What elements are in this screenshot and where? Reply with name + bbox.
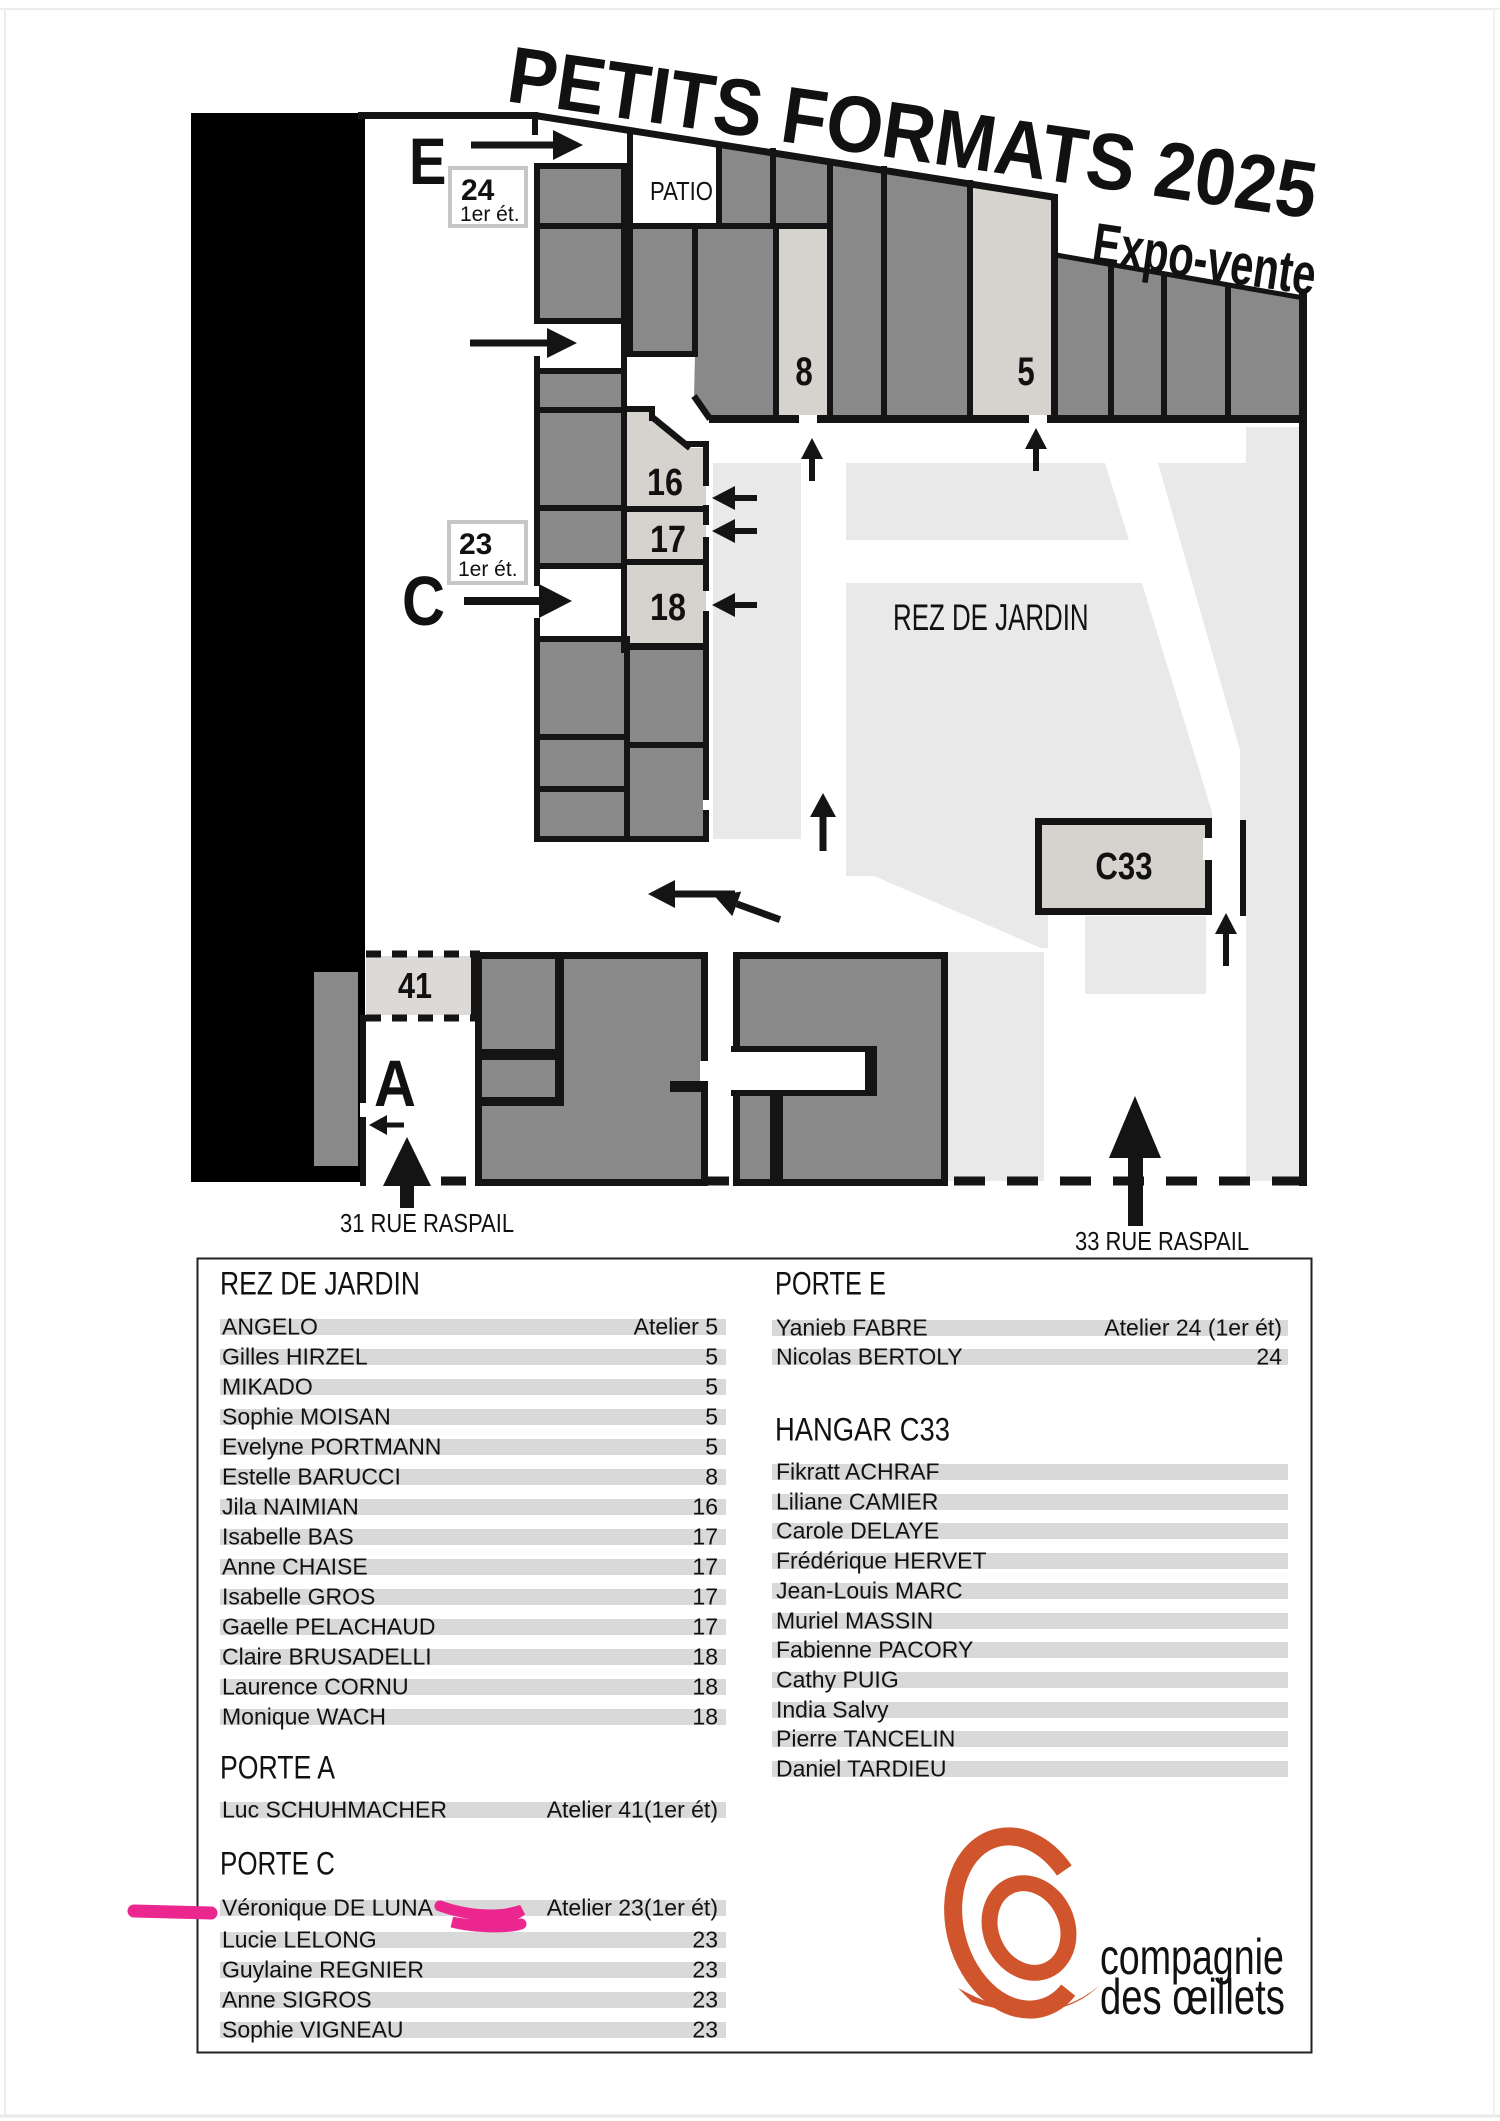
svg-text:REZ DE JARDIN: REZ DE JARDIN	[893, 596, 1089, 638]
svg-text:PATIO: PATIO	[650, 177, 713, 206]
svg-text:Carole DELAYE: Carole DELAYE	[776, 1518, 939, 1544]
svg-text:Anne CHAISE: Anne CHAISE	[222, 1554, 368, 1580]
svg-text:Yanieb FABRE: Yanieb FABRE	[776, 1315, 928, 1341]
svg-text:5: 5	[705, 1404, 718, 1430]
svg-text:Fikratt ACHRAF: Fikratt ACHRAF	[776, 1459, 940, 1485]
svg-text:India Salvy: India Salvy	[776, 1697, 889, 1723]
svg-text:des œillets: des œillets	[1100, 1970, 1285, 2025]
svg-text:MIKADO: MIKADO	[222, 1374, 313, 1400]
svg-text:Sophie VIGNEAU: Sophie VIGNEAU	[222, 2017, 404, 2043]
svg-text:A: A	[374, 1048, 416, 1121]
svg-text:HANGAR C33: HANGAR C33	[775, 1413, 950, 1448]
svg-text:PORTE A: PORTE A	[220, 1750, 335, 1786]
svg-text:Estelle BARUCCI: Estelle BARUCCI	[222, 1464, 401, 1490]
svg-text:Luc SCHUHMACHER: Luc SCHUHMACHER	[222, 1797, 447, 1823]
svg-text:Atelier 5: Atelier 5	[634, 1314, 718, 1340]
svg-text:ANGELO: ANGELO	[222, 1314, 318, 1340]
svg-text:5: 5	[705, 1344, 718, 1370]
svg-text:PORTE E: PORTE E	[775, 1267, 886, 1302]
svg-text:Jean-Louis MARC: Jean-Louis MARC	[776, 1578, 963, 1604]
svg-text:Sophie MOISAN: Sophie MOISAN	[222, 1404, 391, 1430]
svg-text:Jila NAIMIAN: Jila NAIMIAN	[222, 1494, 359, 1520]
svg-text:Véronique DE LUNA: Véronique DE LUNA	[222, 1895, 434, 1921]
svg-text:REZ DE JARDIN: REZ DE JARDIN	[220, 1266, 420, 1302]
svg-text:17: 17	[692, 1614, 718, 1640]
svg-text:17: 17	[692, 1554, 718, 1580]
svg-text:17: 17	[650, 519, 686, 561]
svg-text:E: E	[409, 125, 446, 198]
svg-text:Anne SIGROS: Anne SIGROS	[222, 1987, 372, 2013]
svg-text:23: 23	[692, 1987, 718, 2013]
svg-text:Guylaine REGNIER: Guylaine REGNIER	[222, 1957, 424, 1983]
svg-text:5: 5	[705, 1374, 718, 1400]
svg-text:Isabelle GROS: Isabelle GROS	[222, 1584, 375, 1610]
svg-text:Muriel MASSIN: Muriel MASSIN	[776, 1608, 933, 1634]
svg-text:Nicolas BERTOLY: Nicolas BERTOLY	[776, 1344, 963, 1370]
svg-text:Liliane CAMIER: Liliane CAMIER	[776, 1489, 938, 1515]
svg-text:16: 16	[692, 1494, 718, 1520]
svg-text:Laurence CORNU: Laurence CORNU	[222, 1674, 409, 1700]
svg-text:1er ét.: 1er ét.	[458, 558, 518, 581]
svg-text:Gilles HIRZEL: Gilles HIRZEL	[222, 1344, 368, 1370]
svg-text:23: 23	[459, 528, 492, 561]
svg-text:Atelier 24 (1er ét): Atelier 24 (1er ét)	[1104, 1315, 1282, 1341]
svg-text:18: 18	[650, 587, 686, 629]
svg-text:23: 23	[692, 1957, 718, 1983]
svg-text:18: 18	[692, 1674, 718, 1700]
svg-text:Lucie LELONG: Lucie LELONG	[222, 1927, 377, 1953]
svg-text:Atelier 41(1er ét): Atelier 41(1er ét)	[547, 1797, 718, 1823]
svg-text:18: 18	[692, 1704, 718, 1730]
svg-text:Cathy PUIG: Cathy PUIG	[776, 1667, 899, 1693]
svg-text:Claire BRUSADELLI: Claire BRUSADELLI	[222, 1644, 432, 1670]
svg-text:5: 5	[1017, 349, 1034, 394]
svg-text:18: 18	[692, 1644, 718, 1670]
svg-text:Evelyne PORTMANN: Evelyne PORTMANN	[222, 1434, 441, 1460]
svg-text:5: 5	[705, 1434, 718, 1460]
svg-text:17: 17	[692, 1584, 718, 1610]
svg-text:16: 16	[647, 462, 683, 504]
svg-text:Daniel TARDIEU: Daniel TARDIEU	[776, 1756, 946, 1782]
svg-text:C: C	[402, 561, 445, 640]
svg-text:31 RUE RASPAIL: 31 RUE RASPAIL	[340, 1209, 514, 1238]
svg-text:23: 23	[692, 2017, 718, 2043]
svg-text:23: 23	[692, 1927, 718, 1953]
svg-text:24: 24	[1256, 1344, 1282, 1370]
svg-text:1er ét.: 1er ét.	[460, 203, 520, 226]
svg-text:Pierre TANCELIN: Pierre TANCELIN	[776, 1726, 955, 1752]
svg-text:8: 8	[795, 349, 812, 394]
svg-text:17: 17	[692, 1524, 718, 1550]
svg-text:41: 41	[398, 967, 432, 1007]
svg-text:Gaelle PELACHAUD: Gaelle PELACHAUD	[222, 1614, 435, 1640]
svg-text:Frédérique HERVET: Frédérique HERVET	[776, 1548, 987, 1574]
svg-text:Monique WACH: Monique WACH	[222, 1704, 386, 1730]
svg-text:Atelier 23(1er ét): Atelier 23(1er ét)	[547, 1895, 718, 1921]
svg-text:8: 8	[705, 1464, 718, 1490]
svg-text:PORTE C: PORTE C	[220, 1847, 335, 1882]
svg-text:C33: C33	[1095, 846, 1152, 888]
svg-text:Fabienne PACORY: Fabienne PACORY	[776, 1637, 973, 1663]
svg-text:33 RUE RASPAIL: 33 RUE RASPAIL	[1075, 1227, 1249, 1256]
svg-text:Isabelle BAS: Isabelle BAS	[222, 1524, 354, 1550]
